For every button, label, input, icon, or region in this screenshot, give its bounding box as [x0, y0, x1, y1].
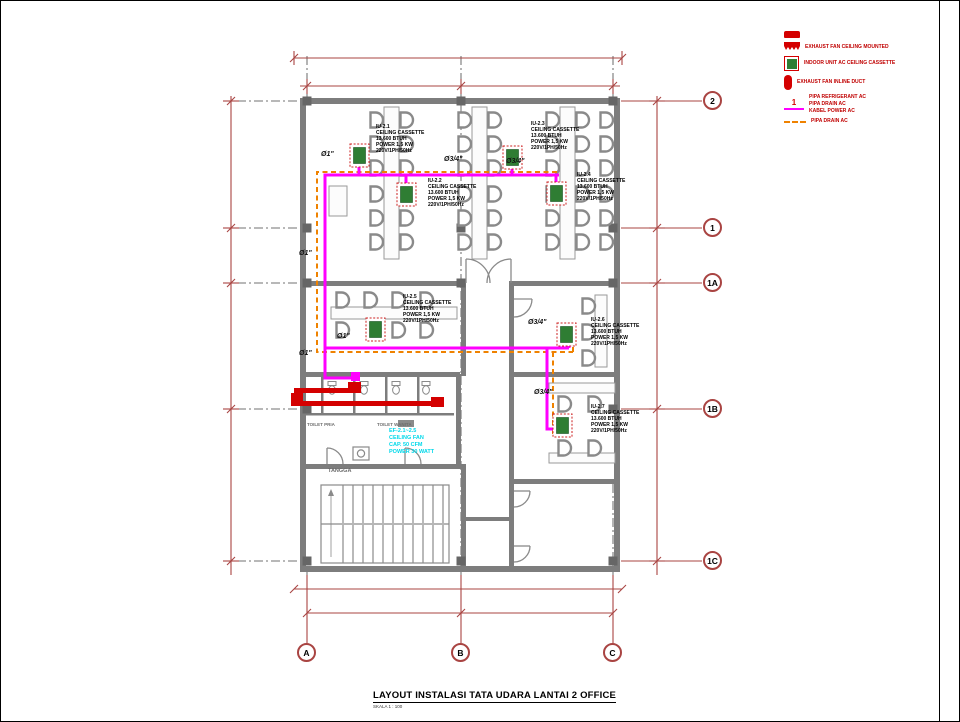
pipe-size-annotation: Ø3/4"	[528, 319, 547, 326]
legend-label: EXHAUST FAN CEILING MOUNTED	[805, 44, 889, 51]
legend-row-indoor-unit: INDOOR UNIT AC CEILING CASSETTE	[784, 56, 959, 71]
pipe-size-annotation: Ø1"	[299, 350, 312, 357]
unit-label-iu-2-7: IU-2.7CEILING CASSETTE13.600 BTUHPOWER 1…	[591, 404, 639, 434]
refrigerant-riser	[351, 372, 360, 381]
pipe-size-annotation: Ø3/4"	[534, 389, 553, 396]
unit-label-iu-2-3: IU-2.3CEILING CASSETTE13.600 BTUHPOWER 1…	[531, 121, 579, 151]
indoor-unit-icon	[784, 56, 799, 71]
pipe-size-annotation: Ø1"	[321, 151, 334, 158]
grid-bubble-1c: 1C	[703, 551, 722, 570]
exhaust-fan-label: EF-2.1~2.5CEILING FAN CAP. 50 CFMPOWER 3…	[389, 428, 434, 456]
legend-row-refrigerant-pipe: 1 PIPA REFRIGERANT AC PIPA DRAIN AC KABE…	[784, 94, 959, 114]
drain-pipe-icon	[784, 121, 806, 123]
grid-bubble-1b: 1B	[703, 399, 722, 418]
refrigerant-pipe-icon: 1	[784, 99, 804, 110]
legend-row-drain-pipe: PIPA DRAIN AC	[784, 118, 959, 125]
room-label-tangga: TANGGA	[328, 468, 351, 474]
inline-fan-icon	[784, 75, 792, 90]
legend-label: EXHAUST FAN INLINE DUCT	[797, 79, 865, 86]
legend: EXHAUST FAN CEILING MOUNTED INDOOR UNIT …	[784, 31, 959, 129]
unit-label-iu-2-1: IU-2.1CEILING CASSETTE13.600 BTUHPOWER 1…	[376, 124, 424, 154]
room-label-toilet-pria: TOILET PRIA	[307, 422, 335, 427]
drawing-scale: SKALA 1 : 100	[373, 704, 623, 709]
stairs	[321, 485, 449, 563]
legend-row-exhaust-fan: EXHAUST FAN CEILING MOUNTED	[784, 42, 959, 52]
exhaust-grille-icon	[784, 31, 800, 38]
grid-bubble-1: 1	[703, 218, 722, 237]
grid-bubble-1a: 1A	[703, 273, 722, 292]
grid-bubble-c: C	[603, 643, 622, 662]
legend-row-inline-fan: EXHAUST FAN INLINE DUCT	[784, 75, 959, 90]
unit-label-iu-2-4: IU-2.4CEILING CASSETTE13.600 BTUHPOWER 1…	[577, 172, 625, 202]
pipe-size-annotation: Ø1"	[299, 250, 312, 257]
pipe-size-annotation: Ø3/4"	[506, 158, 525, 165]
grid-bubble-a: A	[297, 643, 316, 662]
exhaust-fan-ceiling-icon	[784, 42, 800, 52]
unit-label-iu-2-5: IU-2.5CEILING CASSETTE13.600 BTUHPOWER 1…	[403, 294, 451, 324]
floor-plan-sheet: IU-2.1CEILING CASSETTE13.600 BTUHPOWER 1…	[0, 0, 960, 722]
title-block: LAYOUT INSTALASI TATA UDARA LANTAI 2 OFF…	[373, 685, 623, 709]
room-label-toilet-wanita: TOILET WANITA	[377, 422, 412, 427]
pipe-size-annotation: Ø1"	[337, 333, 350, 340]
legend-row-exhaust-grille	[784, 31, 959, 38]
grid-bubble-2: 2	[703, 91, 722, 110]
legend-label: PIPA DRAIN AC	[811, 118, 848, 125]
legend-label: PIPA REFRIGERANT AC PIPA DRAIN AC KABEL …	[809, 94, 866, 114]
grid-bubble-b: B	[451, 643, 470, 662]
unit-label-iu-2-6: IU-2.6CEILING CASSETTE13.600 BTUHPOWER 1…	[591, 317, 639, 347]
legend-label: INDOOR UNIT AC CEILING CASSETTE	[804, 60, 895, 67]
pipe-size-annotation: Ø3/4"	[444, 156, 463, 163]
unit-label-iu-2-2: IU-2.2CEILING CASSETTE13.600 BTUHPOWER 1…	[428, 178, 476, 208]
drawing-title: LAYOUT INSTALASI TATA UDARA LANTAI 2 OFF…	[373, 690, 616, 703]
